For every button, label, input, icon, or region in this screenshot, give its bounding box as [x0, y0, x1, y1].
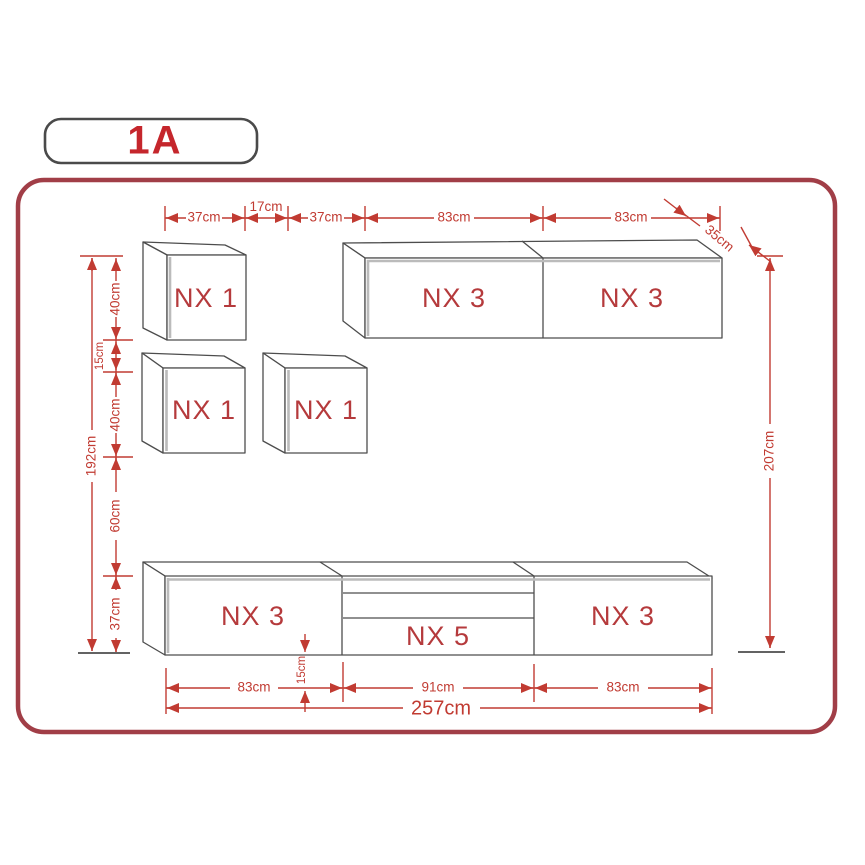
box-label: NX 3 — [591, 601, 655, 631]
dim-bottom-total: 257cm — [411, 697, 471, 719]
wall-cube-top: NX 1 — [143, 242, 246, 340]
diagram-canvas: 1A NX 1 NX 1 NX 1 — [0, 0, 865, 865]
dim-bottom-w3: 83cm — [606, 680, 639, 695]
dim-left-h1: 40cm — [108, 282, 123, 315]
dim-bottom-w2: 91cm — [421, 680, 454, 695]
box-label: NX 5 — [406, 621, 470, 651]
left-dimensions: 192cm 40cm 15cm 40cm 60cm 37cm — [78, 256, 133, 653]
furniture: NX 1 NX 1 NX 1 NX 3 NX 3 — [142, 240, 722, 655]
dim-top-w4: 83cm — [614, 210, 647, 225]
right-dimension: 207cm — [738, 256, 785, 652]
box-label: NX 1 — [174, 283, 238, 313]
dim-left-h2: 40cm — [108, 398, 123, 431]
dim-left-total: 192cm — [84, 436, 99, 477]
cube-left-face — [263, 353, 285, 453]
wall-cube-left: NX 1 — [142, 353, 245, 453]
variant-badge-label: 1A — [127, 119, 182, 163]
wall-cabinet: NX 3 NX 3 — [343, 240, 722, 338]
box-label: NX 1 — [294, 395, 358, 425]
top-dimensions: 37cm 17cm 37cm 83cm 83cm — [165, 199, 720, 231]
cube-left-face — [143, 242, 167, 340]
box-label: NX 3 — [422, 283, 486, 313]
cabinet-left-face — [343, 243, 365, 338]
furniture-dimension-sheet: 1A NX 1 NX 1 NX 1 — [0, 0, 865, 865]
cabinet-left-face — [143, 562, 165, 655]
box-label: NX 3 — [221, 601, 285, 631]
base-cabinet: NX 3 NX 5 NX 3 — [143, 562, 712, 655]
dim-bottom-w1: 83cm — [237, 680, 270, 695]
dim-top-w3: 83cm — [437, 210, 470, 225]
cube-left-face — [142, 353, 163, 453]
dim-left-h3: 37cm — [108, 597, 123, 630]
dim-top-gap: 17cm — [249, 199, 282, 214]
dim-top-w2: 37cm — [309, 210, 342, 225]
dim-bottom-leg: 15cm — [296, 656, 308, 684]
box-label: NX 1 — [172, 395, 236, 425]
dim-right-total: 207cm — [762, 431, 777, 472]
wall-cube-right: NX 1 — [263, 353, 367, 453]
dim-left-g2: 60cm — [108, 499, 123, 532]
dim-left-g1: 15cm — [94, 342, 106, 370]
box-label: NX 3 — [600, 283, 664, 313]
dim-top-w1: 37cm — [187, 210, 220, 225]
